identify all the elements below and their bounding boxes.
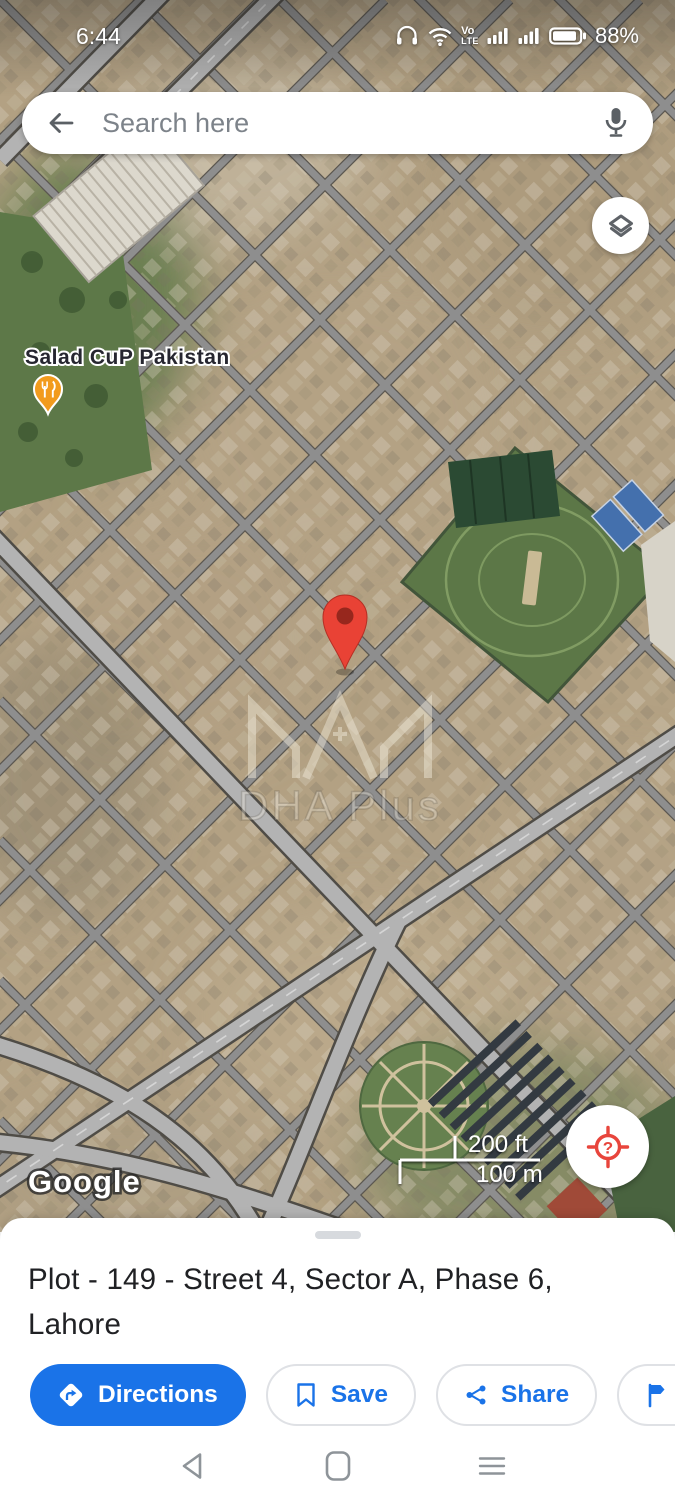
map-viewport[interactable]: DHA Plus Salad CuP Pakistan — [0, 0, 675, 1232]
nav-back-icon — [177, 1449, 207, 1483]
status-time: 6:44 — [76, 23, 121, 50]
place-title: Plot - 149 - Street 4, Sector A, Phase 6… — [0, 1239, 675, 1347]
scale-feet: 200 ft — [468, 1131, 528, 1158]
battery-icon — [549, 26, 587, 46]
share-button[interactable]: Share — [436, 1364, 597, 1426]
drag-handle[interactable] — [315, 1231, 361, 1239]
map-layers-button[interactable] — [592, 197, 649, 254]
mic-button[interactable] — [603, 106, 629, 140]
add-button[interactable]: Add — [617, 1364, 675, 1426]
screen: DHA Plus Salad CuP Pakistan — [0, 0, 675, 1500]
nav-menu-button[interactable] — [477, 1449, 507, 1483]
share-icon — [464, 1383, 488, 1407]
svg-text:?: ? — [602, 1138, 612, 1157]
locate-question-icon: ? — [585, 1124, 631, 1170]
android-nav-bar — [0, 1432, 675, 1500]
nav-home-icon — [323, 1449, 353, 1483]
directions-label: Directions — [98, 1381, 218, 1409]
directions-button[interactable]: Directions — [30, 1364, 246, 1426]
signal-icon — [487, 25, 510, 47]
back-arrow-icon[interactable] — [46, 108, 76, 138]
wifi-icon — [427, 25, 453, 47]
scale-meters: 100 m — [476, 1161, 543, 1188]
search-bar[interactable]: Search here — [22, 92, 653, 154]
flag-icon — [645, 1382, 669, 1408]
watermark-text: DHA Plus — [238, 782, 442, 829]
battery-percent: 88% — [595, 23, 639, 49]
nav-menu-icon — [477, 1449, 507, 1483]
action-buttons-row: Directions Save Share — [0, 1364, 675, 1426]
signal-icon-2 — [518, 25, 541, 47]
poi-label[interactable]: Salad CuP Pakistan — [25, 346, 230, 369]
google-logo: Google — [28, 1164, 141, 1199]
bookmark-icon — [294, 1382, 318, 1408]
nav-home-button[interactable] — [323, 1449, 353, 1483]
search-input[interactable]: Search here — [102, 108, 249, 139]
layers-icon — [604, 209, 638, 243]
share-label: Share — [501, 1381, 569, 1409]
directions-icon — [58, 1382, 84, 1408]
headset-icon — [395, 25, 419, 47]
satellite-map[interactable]: DHA Plus Salad CuP Pakistan — [0, 0, 675, 1232]
status-bar: 6:44 Vo LTE — [0, 0, 675, 64]
my-location-button[interactable]: ? — [566, 1105, 649, 1188]
save-button[interactable]: Save — [266, 1364, 416, 1426]
mic-icon — [603, 106, 629, 140]
save-label: Save — [331, 1381, 388, 1409]
volte-badge: Vo LTE — [461, 26, 479, 46]
nav-back-button[interactable] — [177, 1449, 207, 1483]
